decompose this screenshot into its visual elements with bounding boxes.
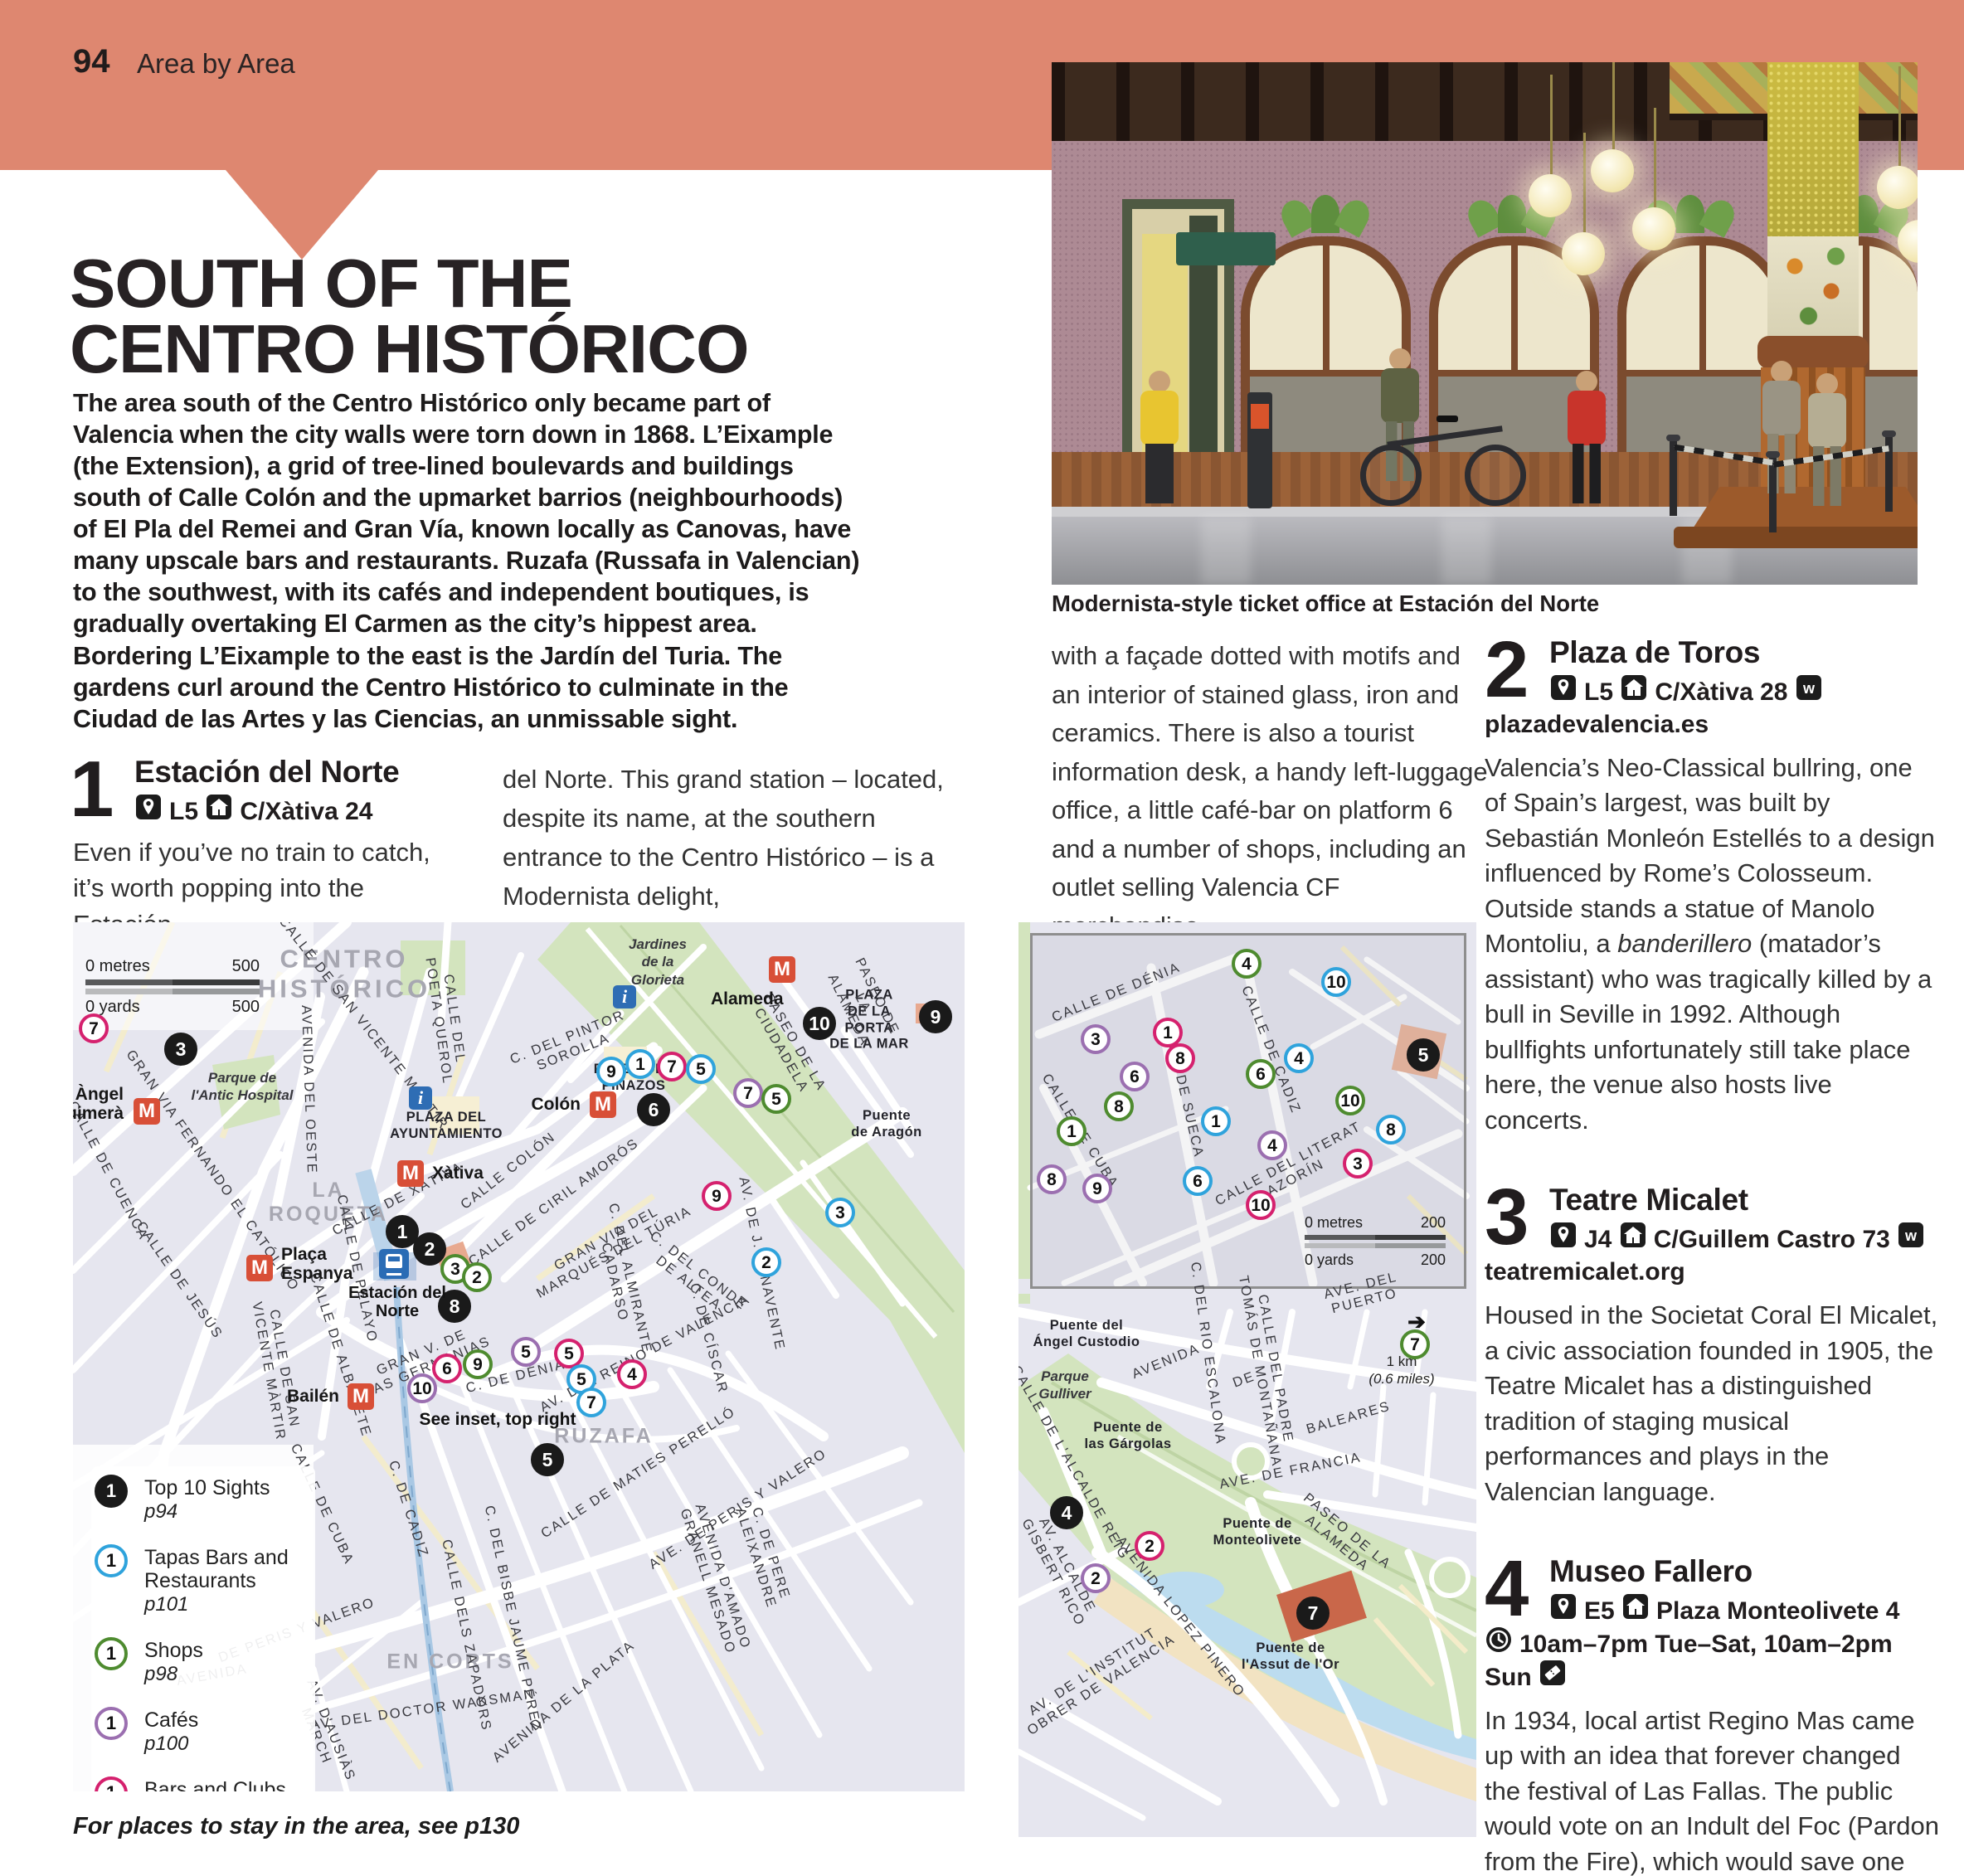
- entry-meta-text: Plaza Monteolivete 4: [1656, 1597, 1899, 1625]
- legend-label: Bars and Clubsp99: [144, 1776, 286, 1791]
- map-scale: 0 metres500 0 yards500: [85, 957, 260, 1017]
- map-annotations: CALLE DE DÉNIACALLE DE SUECACALLE DE CAD…: [1018, 922, 1476, 1837]
- area-map-main: CENTRO HISTÓRICOLA ROQUETARUZAFAEN CORTS…: [73, 922, 965, 1791]
- decor-crest: [1276, 195, 1375, 233]
- ticket-kiosk: [1247, 392, 1272, 508]
- photo-estacion-ticket-office: [1052, 62, 1918, 585]
- map-marker-bar-7: 7: [657, 1052, 687, 1081]
- street-map-label: AVENIDA LOPEZ PINERO: [1112, 1533, 1247, 1700]
- section-title: Area by Area: [137, 48, 295, 80]
- right-column: 2 Plaza de Toros L5 C/Xàtiva 28 wplazade…: [1485, 635, 1939, 1876]
- metro-station-badge: MXàtiva: [397, 1160, 424, 1187]
- metro-station-badge: MBailén: [348, 1383, 374, 1410]
- metro-icon: M: [348, 1383, 374, 1410]
- entry-heading: Teatre Micalet: [1549, 1183, 1939, 1217]
- page-number: 94: [73, 43, 110, 80]
- legend-marker-icon: 1: [95, 1475, 128, 1508]
- map-marker-bar-7: 7: [79, 1013, 109, 1043]
- map-marker-shop-5: 5: [761, 1084, 791, 1114]
- street-map-label: CALLE DE JESÚS: [133, 1219, 226, 1343]
- metro-station-badge: MColón: [590, 1091, 616, 1118]
- legend-item-cafe: 1Cafésp100: [95, 1707, 312, 1755]
- entry-meta-text: C/Guillem Castro 73: [1654, 1226, 1897, 1253]
- place-map-label: Puente de Monteolivete: [1213, 1516, 1302, 1549]
- map-marker-tapas-5: 5: [686, 1054, 716, 1084]
- map-marker-shop-7: 7: [1400, 1329, 1430, 1359]
- map-marker-cafe-9: 9: [1082, 1174, 1112, 1203]
- map-marker-shop-4: 4: [1232, 949, 1262, 979]
- place-map-label: Puente del Ángel Custodio: [1033, 1318, 1140, 1351]
- district-map-label: EN CORTS: [386, 1650, 513, 1674]
- metro-station-name: Xàtiva: [432, 1164, 523, 1183]
- page-title: SOUTH OF THE CENTRO HISTÓRICO: [70, 250, 749, 382]
- guidebook-page: 94 Area by Area: [0, 0, 1964, 1876]
- area-map-inset-and-turia: CALLE DE DÉNIACALLE DE SUECACALLE DE CAD…: [1018, 922, 1476, 1837]
- metro-icon: M: [769, 956, 795, 983]
- tourist-info-icon: i: [613, 985, 636, 1008]
- street-map-label: CALLE DEL POETA QUEROL: [421, 955, 470, 1086]
- globe-lamp: [1877, 166, 1918, 209]
- website-icon: w: [1898, 1222, 1927, 1251]
- map-marker-tapas-7: 7: [576, 1388, 606, 1417]
- street-map-label: CALLE DE DÉNIA: [1050, 960, 1184, 1026]
- legend-item-shop: 1Shopsp98: [95, 1637, 312, 1685]
- globe-lamp: [1562, 232, 1605, 275]
- entry-meta: J4 C/Guillem Castro 73 wteatremicalet.or…: [1485, 1222, 1939, 1288]
- entry-number: 1: [70, 750, 114, 829]
- street-map-label: C. DE PERE ALEIXANDRE: [732, 1501, 794, 1611]
- stay-reference-note: For places to stay in the area, see p130: [73, 1813, 519, 1840]
- entry-meta: L5 C/Xàtiva 28 wplazadevalencia.es: [1485, 675, 1939, 741]
- map-marker-cafe-6: 6: [1120, 1062, 1150, 1091]
- note-map-label: See inset, top right: [419, 1410, 576, 1430]
- map-pin-icon: [1551, 1222, 1579, 1251]
- entry-heading: Museo Fallero: [1549, 1554, 1939, 1589]
- legend-label: Shopsp98: [144, 1637, 203, 1685]
- street-map-label: C. DE CADIZ: [385, 1459, 431, 1560]
- map-marker-shop-9: 9: [463, 1349, 493, 1379]
- map-pin-icon: [1551, 675, 1579, 703]
- map-marker-bar-2: 2: [1135, 1531, 1164, 1561]
- admission-icon: [1540, 1660, 1568, 1689]
- map-pin-icon: [1551, 1594, 1579, 1622]
- park-map-label: Jardines de la Glorieta: [629, 936, 687, 989]
- queue-post: [1670, 440, 1677, 516]
- train-station-name: Estación del Norte: [331, 1284, 464, 1321]
- map-marker-shop-1: 1: [1057, 1116, 1087, 1146]
- entry-number: 4: [1485, 1549, 1529, 1629]
- map-marker-cafe-5: 5: [511, 1337, 541, 1367]
- entry-number: 2: [1485, 630, 1529, 710]
- map-marker-cafe-3: 3: [1081, 1024, 1111, 1054]
- address-icon: [1621, 675, 1650, 703]
- map-marker-tapas-2: 2: [751, 1247, 781, 1277]
- map-marker-sight-2: 2: [413, 1232, 446, 1266]
- map-marker-tapas-6: 6: [1183, 1166, 1213, 1196]
- legend-marker-icon: 1: [95, 1707, 128, 1740]
- map-marker-tapas-8: 8: [1376, 1115, 1406, 1145]
- map-marker-bar-6: 6: [432, 1354, 462, 1383]
- legend-label: Tapas Bars and Restaurantsp101: [144, 1544, 312, 1616]
- legend-label: Top 10 Sightsp94: [144, 1475, 270, 1523]
- metro-station-name: Colón: [502, 1095, 581, 1114]
- entry-estacion-del-norte: 1 Estación del Norte L5 C/Xàtiva 24 Even…: [70, 755, 974, 828]
- metro-station-name: Àngel Guimerà: [73, 1085, 124, 1123]
- entry-museo-fallero: 4 Museo Fallero E5 Plaza Monteolivete 4 …: [1485, 1554, 1939, 1876]
- map-marker-tapas-4: 4: [1284, 1043, 1314, 1073]
- entry-teatre-micalet: 3 Teatre Micalet J4 C/Guillem Castro 73 …: [1485, 1183, 1939, 1509]
- map-marker-shop-2: 2: [462, 1262, 492, 1292]
- legend-marker-icon: 1: [95, 1776, 128, 1791]
- globe-lamp: [1529, 174, 1572, 217]
- street-map-label: AV. DEL DOCTOR WAKSMAN: [309, 1687, 536, 1734]
- entry-meta-text: plazadevalencia.es: [1485, 711, 1709, 738]
- street-map-label: BALEARES: [1305, 1398, 1393, 1437]
- map-marker-sight-4: 4: [1050, 1496, 1083, 1529]
- map-marker-cafe-8: 8: [1037, 1164, 1067, 1194]
- legend-item-tapas: 1Tapas Bars and Restaurantsp101: [95, 1544, 312, 1616]
- map-marker-bar-4: 4: [617, 1359, 647, 1389]
- map-marker-tapas-3: 3: [825, 1198, 855, 1227]
- street-map-label: AVE. DEL PUERTO: [1304, 1265, 1422, 1323]
- legend-marker-icon: 1: [95, 1544, 128, 1577]
- metro-station-badge: MAlameda: [769, 956, 795, 983]
- inset-scale: 0 metres200 0 yards200: [1305, 1214, 1446, 1269]
- map-marker-sight-6: 6: [637, 1093, 670, 1126]
- entry-meta-text: C/Xàtiva 24: [240, 798, 372, 825]
- legend-item-bar: 1Bars and Clubsp99: [95, 1776, 312, 1791]
- entry-meta-text: teatremicalet.org: [1485, 1258, 1685, 1285]
- map-marker-bar-9: 9: [702, 1181, 732, 1211]
- metro-icon: M: [246, 1255, 273, 1281]
- tourist-info-icon: i: [409, 1086, 432, 1110]
- street-map-label: AV. DE L'INSTITUT OBRER DE VALENCIA: [1018, 1618, 1179, 1738]
- entry-plaza-de-toros: 2 Plaza de Toros L5 C/Xàtiva 28 wplazade…: [1485, 635, 1939, 1138]
- map-marker-sight-10: 10: [803, 1007, 836, 1040]
- map-pin-icon: [136, 795, 164, 823]
- metro-icon: M: [397, 1160, 424, 1187]
- entry-number: 3: [1485, 1178, 1529, 1257]
- street-map-label: CALLE DEL PADRE TOMÁS DE MONTAÑANA: [1235, 1271, 1300, 1468]
- map-marker-tapas-1: 1: [1201, 1106, 1231, 1136]
- address-icon: [1621, 1222, 1649, 1251]
- map-marker-tapas-9: 9: [596, 1057, 626, 1086]
- place-map-label: Puente de l'Assut de l'Or: [1242, 1640, 1339, 1674]
- park-map-label: Parque de l'Antic Hospital: [191, 1069, 293, 1105]
- map-marker-bar-10: 10: [1246, 1190, 1276, 1220]
- entry-body: Housed in the Societat Coral El Micalet,…: [1485, 1298, 1939, 1509]
- globe-lamp: [1632, 207, 1675, 250]
- map-marker-cafe-2: 2: [1081, 1563, 1111, 1593]
- entry-body: In 1934, local artist Regino Mas came up…: [1485, 1703, 1939, 1876]
- photo-caption: Modernista-style ticket office at Estaci…: [1052, 591, 1898, 617]
- bicycle: [1360, 419, 1526, 506]
- metro-station-badge: MÀngel Guimerà: [134, 1098, 160, 1125]
- website-icon: w: [1796, 675, 1825, 703]
- place-map-label: Puente de las Gárgolas: [1084, 1420, 1171, 1453]
- map-marker-tapas-1: 1: [625, 1049, 655, 1079]
- metro-icon: M: [134, 1098, 160, 1125]
- address-icon: [1623, 1594, 1651, 1622]
- street-map-label: CALLE DE SAN VICENTE MÀRTIR: [249, 1298, 304, 1442]
- map-marker-tapas-10: 10: [1321, 967, 1351, 997]
- map-marker-sight-3: 3: [164, 1033, 197, 1066]
- map-marker-cafe-4: 4: [1257, 1130, 1287, 1160]
- address-icon: [207, 795, 235, 823]
- legend-page-ref: p98: [144, 1663, 203, 1685]
- svg-text:w: w: [1802, 680, 1816, 697]
- entry-meta-text: E5: [1584, 1597, 1621, 1625]
- metro-station-name: Bailén: [266, 1387, 339, 1406]
- map-marker-shop-10: 10: [1335, 1086, 1365, 1115]
- street-map-label: AVENIDA: [1130, 1341, 1202, 1383]
- legend-page-ref: p100: [144, 1733, 198, 1755]
- train-station-icon: Estación del Norte: [379, 1249, 409, 1279]
- place-map-label: Puente de Aragón: [851, 1108, 921, 1141]
- street-map-label: AVENIDA DEL OESTE: [298, 1005, 319, 1175]
- map-marker-shop-6: 6: [1246, 1059, 1276, 1089]
- map-marker-sight-5: 5: [1407, 1038, 1440, 1072]
- dist-map-label: 1 km (0.6 miles): [1368, 1353, 1434, 1388]
- map-marker-sight-5: 5: [531, 1443, 564, 1476]
- legend-marker-icon: 1: [95, 1637, 128, 1670]
- map-marker-sight-9: 9: [919, 1000, 952, 1033]
- legend-label: Cafésp100: [144, 1707, 198, 1755]
- entry-meta-text: C/Xàtiva 28: [1655, 678, 1794, 706]
- map-marker-bar-8: 8: [1165, 1043, 1195, 1073]
- entry-meta-text: L5: [169, 798, 205, 825]
- platform-sign: [1176, 232, 1276, 265]
- map-legend: 1Top 10 Sightsp941Tapas Bars and Restaur…: [91, 1466, 315, 1791]
- entry-meta: E5 Plaza Monteolivete 4 10am–7pm Tue–Sat…: [1485, 1594, 1939, 1694]
- map-marker-cafe-7: 7: [733, 1078, 763, 1108]
- entry-body-col2: del Norte. This grand station – located,…: [503, 760, 980, 916]
- metro-icon: M: [590, 1091, 616, 1118]
- map-marker-sight-7: 7: [1296, 1597, 1330, 1630]
- globe-lamp: [1591, 149, 1634, 192]
- legend-item-sight: 1Top 10 Sightsp94: [95, 1475, 312, 1523]
- svg-text:w: w: [1904, 1227, 1918, 1244]
- map-marker-cafe-10: 10: [407, 1373, 437, 1403]
- park-map-label: Parque Gulliver: [1038, 1368, 1091, 1403]
- entry-body: Valencia’s Neo-Classical bullring, one o…: [1485, 751, 1939, 1138]
- entry-meta-text: L5: [1584, 678, 1620, 706]
- map-marker-shop-8: 8: [1104, 1091, 1134, 1121]
- intro-paragraph: The area south of the Centro Histórico o…: [73, 387, 868, 735]
- metro-station-name: Plaça Espanya: [281, 1245, 381, 1283]
- metro-station-name: Alameda: [711, 989, 819, 1008]
- legend-page-ref: p101: [144, 1593, 312, 1616]
- entry-meta-text: J4: [1584, 1226, 1619, 1253]
- entry-body-continued: with a façade dotted with motifs and an …: [1052, 637, 1490, 945]
- metro-station-badge: MPlaça Espanya: [246, 1255, 273, 1281]
- queue-post: [1769, 456, 1777, 532]
- entry-heading: Plaza de Toros: [1549, 635, 1939, 670]
- legend-page-ref: p94: [144, 1500, 270, 1523]
- map-marker-bar-3: 3: [1343, 1149, 1373, 1179]
